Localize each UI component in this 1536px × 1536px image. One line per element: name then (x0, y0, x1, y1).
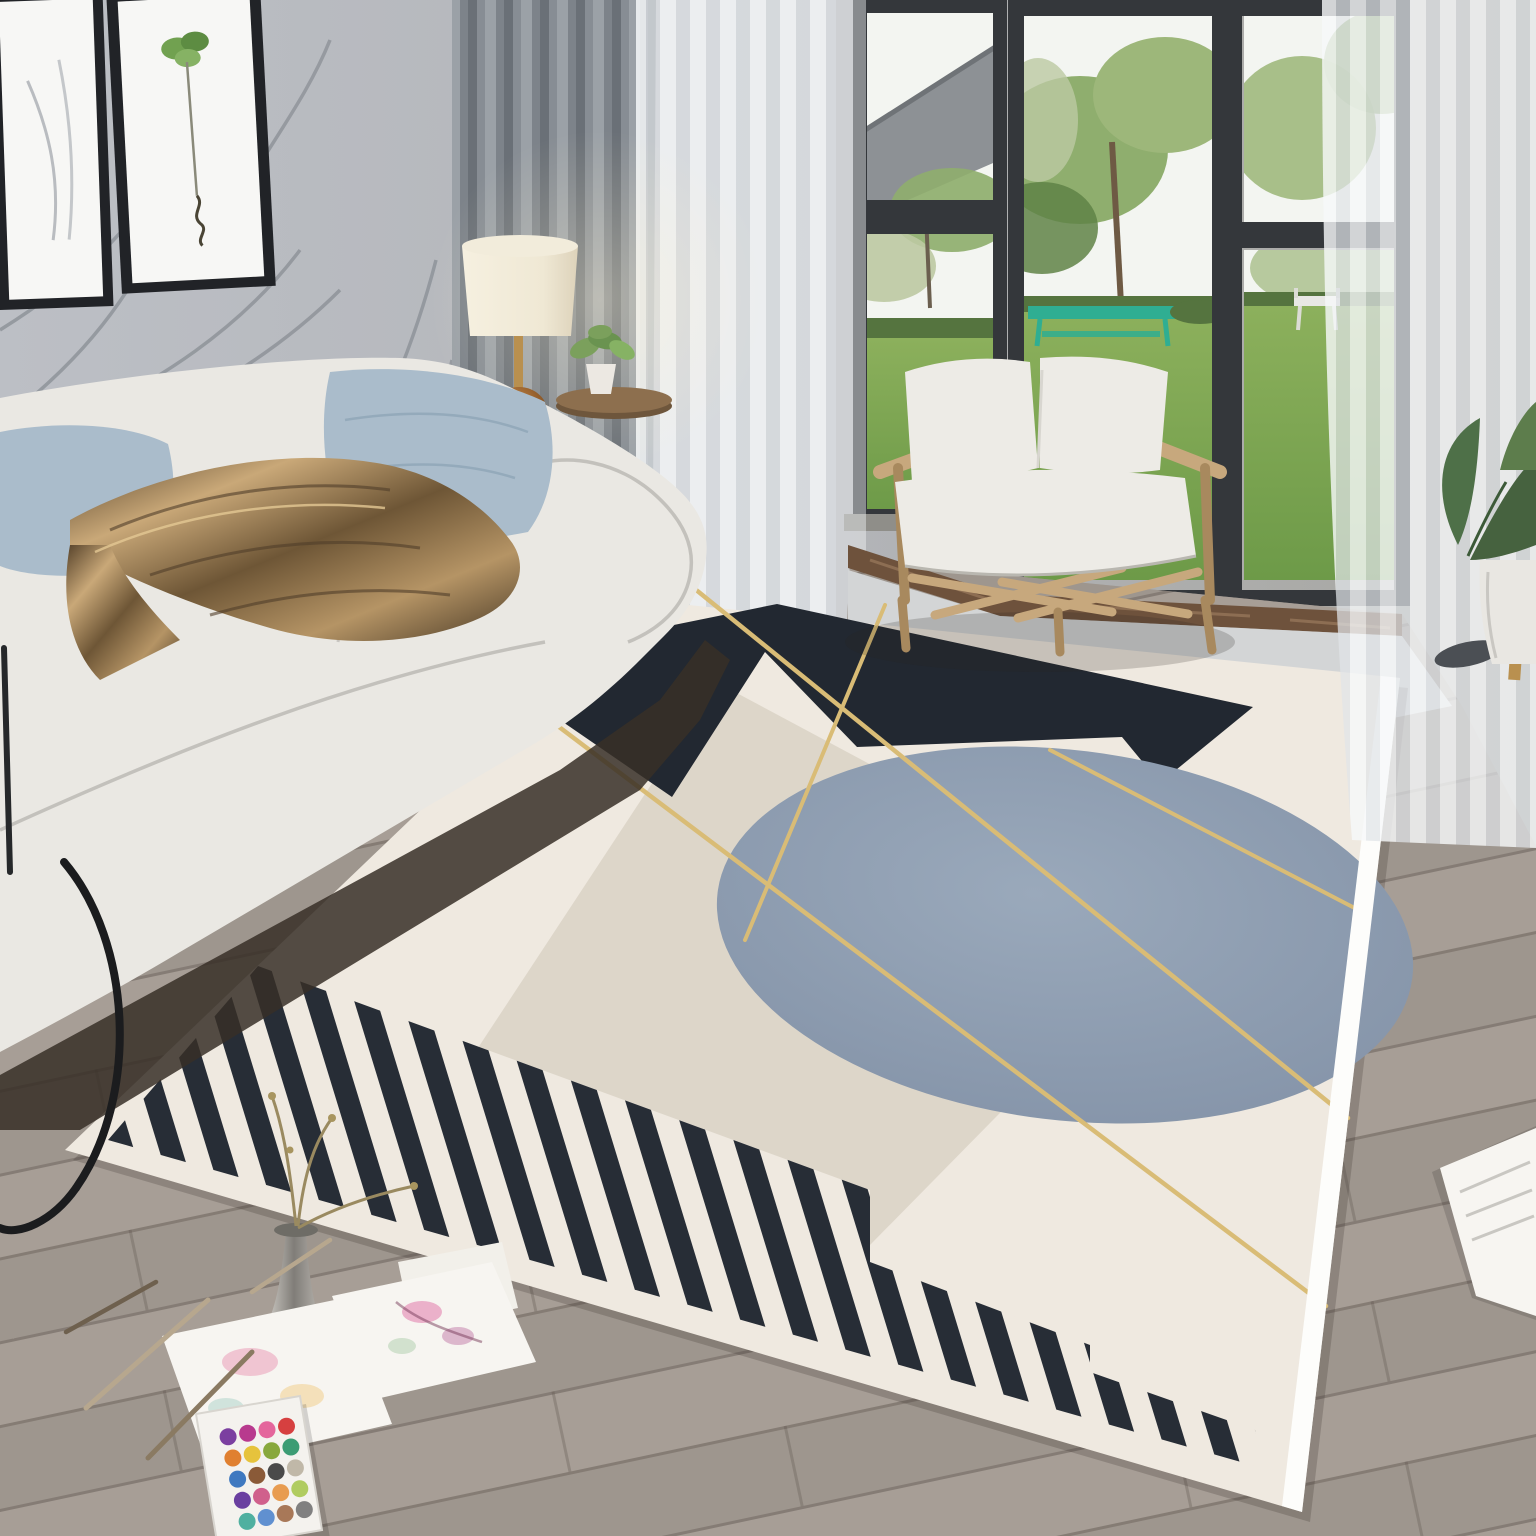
lamp-stem (514, 336, 523, 388)
lamp-shade (462, 246, 578, 336)
paint-pan (239, 1513, 256, 1530)
paint-pan (244, 1446, 261, 1463)
window-crossbar (853, 200, 1007, 234)
paint-pan (258, 1509, 275, 1526)
paint-pan (268, 1463, 285, 1480)
plant-pot (586, 364, 616, 394)
paint-pan (234, 1492, 251, 1509)
branch-leaf (410, 1182, 418, 1190)
lamp-shade-top (462, 235, 578, 257)
paint-pan (278, 1418, 295, 1435)
scene-canvas (0, 0, 1536, 1536)
paint-pan (224, 1450, 241, 1467)
paint-pan (296, 1501, 313, 1518)
branch-leaf (268, 1092, 276, 1100)
paint-pan (287, 1459, 304, 1476)
branch-leaf (328, 1114, 336, 1122)
back-cushion-right (1040, 357, 1168, 474)
paint-blotch (388, 1338, 416, 1354)
paint-pan (291, 1480, 308, 1497)
living-room-photo (0, 0, 1536, 1536)
sheer-curtain-right (1322, 0, 1536, 848)
side-table-top (556, 387, 672, 413)
picture-frame-left (0, 0, 113, 310)
picture-frame-right (106, 0, 276, 294)
window-mullion (1212, 8, 1242, 598)
paint-pan (259, 1421, 276, 1438)
paint-pan (248, 1467, 265, 1484)
paint-pan (220, 1428, 237, 1445)
paint-pan (239, 1425, 256, 1442)
paint-pan (263, 1442, 280, 1459)
paint-pan (277, 1505, 294, 1522)
paint-pan (229, 1471, 246, 1488)
back-cushion-left (905, 359, 1038, 483)
seat-cushion (895, 470, 1196, 575)
paint-pan (272, 1484, 289, 1501)
paint-pan (282, 1439, 299, 1456)
paint-pan (253, 1488, 270, 1505)
teal-garden-table (1028, 306, 1178, 319)
branch-leaf (287, 1147, 294, 1154)
garden-bench (1042, 331, 1160, 337)
